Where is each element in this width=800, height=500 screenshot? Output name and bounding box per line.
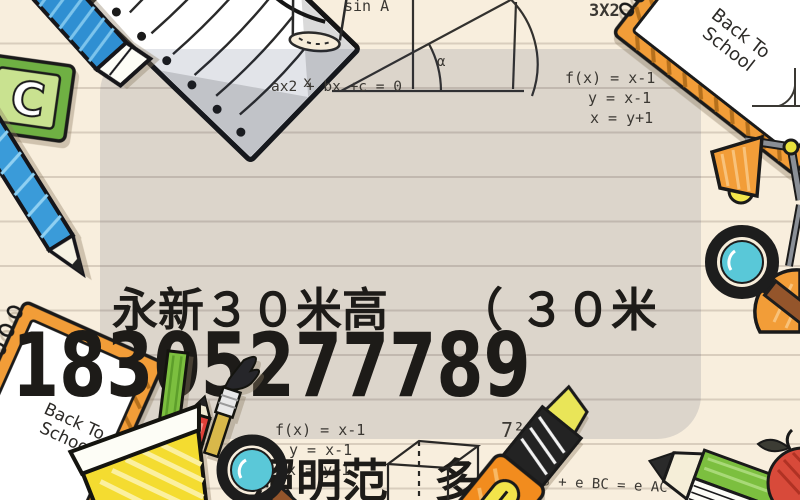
doodle-layer-top: [0, 0, 800, 500]
cube-doodle: [388, 441, 478, 500]
poster-image: sin A 3X2 ax2 + bx +c = 0 x α f(x) = x-1…: [0, 0, 800, 500]
utility-knife-doodle: [416, 379, 606, 500]
magnifier-bottom-doodle: [222, 440, 311, 500]
